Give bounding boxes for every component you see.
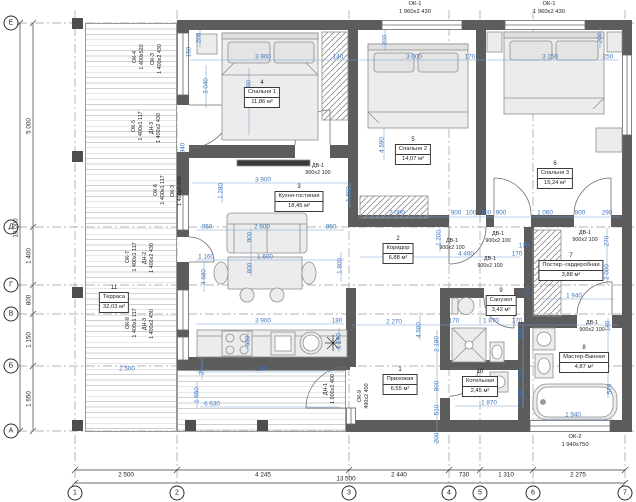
axis-bubble-7: 7	[618, 486, 633, 501]
axis-bubble-5: 5	[473, 486, 488, 501]
dim: 1 650	[26, 391, 33, 407]
door-label-dn2: ДН-21 400х2 430	[142, 243, 156, 273]
door-label-dv1: ДВ-1900х2 100	[485, 231, 510, 245]
room-label-laundry-wardrobe: 7 Постир.-гардеробная3,88 м²	[538, 253, 603, 281]
nightstand	[487, 32, 502, 52]
dim: 180	[525, 285, 532, 296]
room-label-bedroom-2: 5 Спальня 214,07 м²	[395, 137, 431, 165]
dim: 1 800	[337, 258, 344, 274]
window-label-ok1: ОК-11 960х2 430	[533, 1, 565, 17]
toilet-tank	[452, 298, 458, 314]
dim: 170	[518, 370, 525, 381]
window-label-ok4: ОК-41 400х520	[132, 44, 146, 69]
dim: 830	[518, 328, 525, 339]
window-label-ok5: ОК-51 400х1 117	[131, 111, 145, 140]
room-label-corridor: 2 Коридор6,88 м²	[383, 236, 414, 264]
dim: 3 900	[255, 54, 271, 61]
pillow	[418, 53, 458, 72]
dim: 3 250	[542, 54, 558, 61]
dim: 1 280	[218, 183, 225, 199]
window-label-ok9: ОК-9490х2 400	[357, 383, 371, 408]
door-label-dv1: ДВ-1900х2 100	[572, 230, 597, 244]
room-label-boiler: 10 Котельная2,45 м²	[462, 369, 498, 397]
dim: 570	[607, 384, 614, 395]
window-label-ok6: ОК-61 400х1 117	[153, 175, 167, 204]
door-label-dv1: ДВ-1900х2 100	[477, 256, 502, 270]
dim: 510	[434, 405, 441, 416]
dim-total-width: 13 500	[336, 476, 355, 483]
dim: 2 500	[119, 366, 135, 373]
dim: 4 680	[416, 322, 423, 338]
dim: 1 150	[26, 332, 33, 348]
room-label-bathroom: 9 Санузел3,42 м²	[486, 288, 517, 316]
axis-bubble-e: Е	[4, 16, 19, 31]
dim: 3 900	[255, 318, 271, 325]
room-label-bedroom-1: 4 Спальня 111,86 м²	[244, 80, 280, 108]
dim: 200	[597, 33, 604, 44]
axis-bubble-4: 4	[442, 486, 457, 501]
dining-table	[228, 257, 302, 289]
dim: 5 000	[26, 118, 33, 134]
axis-bubble-2: 2	[170, 486, 185, 501]
pillow	[556, 41, 598, 60]
dim: 4 680	[201, 269, 208, 285]
dim: 1 160	[198, 254, 214, 261]
room-label-terrace: 11 Терраса32,03 м²	[99, 285, 129, 313]
dim: 170	[519, 243, 530, 250]
axis-bubble-g: Г	[4, 278, 19, 293]
room-label-bedroom-3: 6 Спальня 315,24 м²	[537, 161, 573, 189]
window-label-ok2: ОК-21 940х750	[561, 434, 588, 450]
dim: 4 690	[379, 137, 386, 153]
axis-bubble-a: А	[4, 424, 19, 439]
dim: 950	[202, 224, 213, 231]
door-label-dn3: ДН-31 400х2 430	[149, 113, 163, 143]
window-label-ok7: ОК-71 400х1 117	[125, 242, 139, 271]
window-label-ok3: ОК-31 400х2 430	[150, 44, 164, 74]
dim: 600	[245, 336, 252, 347]
dim: 1 310	[498, 472, 514, 479]
dim: 2 180	[434, 336, 441, 352]
axis-bubble-b: Б	[4, 359, 19, 374]
dim: 900	[451, 210, 462, 217]
window-label-ok3: ОК-31 400х2 430	[170, 176, 184, 206]
dim: 940	[180, 143, 187, 154]
chair	[302, 262, 316, 284]
door-label-dv1: ДВ-1900х2 100	[439, 238, 464, 252]
dim: 4 130	[251, 366, 267, 373]
dim: 200	[382, 35, 389, 46]
dim: 1 400	[26, 248, 33, 264]
room-label-kitchen-living: 3 Кухня-гостиная18,45 м²	[274, 184, 323, 212]
dim: 250	[603, 54, 614, 61]
floor-plan: 1 2 3 4 5 6 7 Е Д Г В Б А 2 500 4 245 2 …	[0, 0, 636, 502]
room-label-hall: 1 Прихожая6,55 м²	[383, 367, 418, 395]
dim: 2 270	[386, 319, 402, 326]
window-label-ok1: ОК-11 960х2 430	[399, 1, 431, 17]
chair	[270, 288, 284, 302]
dim: 2 000	[389, 210, 405, 217]
axis-bubble-6: 6	[526, 486, 541, 501]
dim: 2 000	[604, 264, 611, 280]
dim: 800	[247, 263, 254, 274]
axis-bubble-3: 3	[342, 486, 357, 501]
dim: 800	[26, 295, 33, 306]
dim: 3 040	[203, 78, 210, 94]
dim: 180	[605, 321, 612, 332]
door-label-dv1: ДВ-1900х2 100	[579, 320, 604, 334]
room-label-master-bath: 8 Мастер-Ванная4,87 м²	[559, 345, 609, 373]
dim: 1 940	[566, 293, 582, 300]
dim: 800	[434, 381, 441, 392]
toilet	[458, 298, 474, 315]
chair	[214, 262, 228, 284]
dim: 4 245	[255, 472, 271, 479]
door-label-dn3: ДН-31 400х2 430	[142, 309, 156, 339]
dim: 140	[333, 54, 344, 61]
dim: 2 440	[391, 472, 407, 479]
door-label-dv1: ДВ-1900х2 100	[305, 163, 330, 177]
dim: 180	[332, 318, 343, 325]
axis-bubble-1: 1	[68, 486, 83, 501]
desk	[596, 128, 622, 152]
axis-bubble-v: В	[4, 307, 19, 322]
plan-graphics	[0, 0, 636, 502]
dim: 1 870	[483, 318, 499, 325]
dim: 170	[512, 318, 523, 325]
dim: 2 600	[254, 224, 270, 231]
tv-console	[237, 160, 310, 166]
dim-total-height: 10 000	[13, 218, 20, 237]
dim: 900	[575, 210, 586, 217]
wardrobe-1	[322, 32, 348, 120]
dim: 200	[434, 433, 441, 444]
dim: 1 650	[194, 387, 201, 403]
dim: 270	[604, 236, 611, 247]
dim: 3 000	[406, 54, 422, 61]
dim: 100	[481, 210, 492, 217]
dim: 170	[449, 318, 460, 325]
dim: 900	[247, 232, 254, 243]
dim: 170	[512, 251, 523, 258]
dim: 6 630	[204, 401, 220, 408]
dim: 1 870	[481, 400, 497, 407]
nightstand	[607, 32, 622, 52]
dim: 900	[496, 210, 507, 217]
dim: 150	[186, 47, 193, 58]
dim: 1 190	[336, 333, 343, 349]
dim: 1 690	[346, 186, 353, 202]
dim: 730	[459, 472, 470, 479]
dim: 950	[326, 224, 337, 231]
dim: 2 275	[570, 472, 586, 479]
chair	[240, 288, 254, 302]
dim: 1 600	[257, 254, 273, 261]
dim: 2 500	[118, 472, 134, 479]
dim: 200	[196, 33, 203, 44]
door-label-dn1: ДН-11 000х2 400	[323, 374, 337, 404]
dim: 3 900	[255, 177, 271, 184]
dim: 290	[602, 210, 613, 217]
dim: 250	[199, 365, 206, 376]
dim: 1 060	[537, 210, 553, 217]
dim: 170	[465, 54, 476, 61]
dim: 1 940	[565, 412, 581, 419]
dim: 100	[466, 210, 477, 217]
dim: 1 330	[518, 388, 525, 404]
